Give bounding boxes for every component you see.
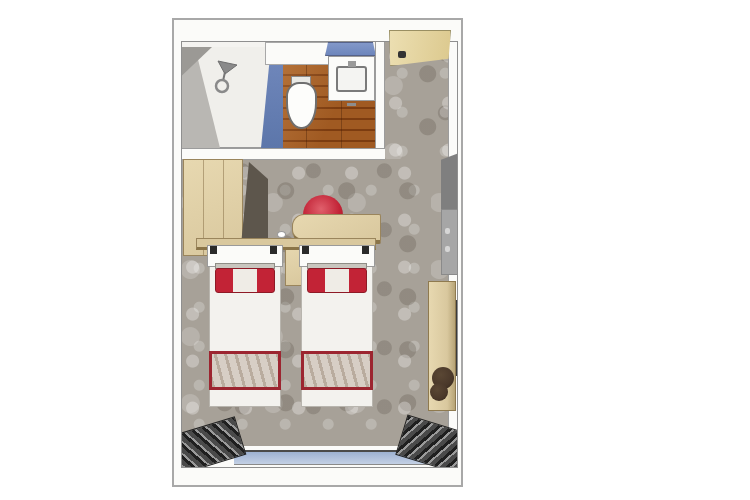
vanity-foot: [347, 103, 356, 106]
panel-knob-top: [445, 228, 450, 234]
door-handle: [398, 51, 406, 58]
cabin-interior: [181, 41, 458, 468]
headboard-clip: [270, 246, 277, 254]
sink-basin: [336, 66, 367, 92]
panel-knob-bottom: [445, 246, 450, 252]
cup: [277, 231, 286, 238]
bed-pillow: [215, 268, 275, 293]
bed-pillow: [307, 268, 367, 293]
headboard-clip: [362, 246, 369, 254]
bathroom-cabinet: [265, 42, 329, 65]
floor-plan-image: [0, 0, 750, 500]
stool-seat: [430, 383, 448, 401]
bed-runner: [209, 351, 281, 390]
wall-panel-dark: [441, 153, 458, 209]
twin-bed-left: [207, 245, 283, 407]
vanity-shelf: [325, 42, 376, 56]
wall-panel-light: [441, 209, 458, 275]
twin-bed-right: [299, 245, 375, 407]
faucet: [348, 61, 356, 67]
shower-head-icon: [210, 55, 244, 95]
headboard-clip: [210, 246, 217, 254]
bathroom-entry-wall: [375, 42, 385, 153]
bed-runner: [301, 351, 373, 390]
cabin-floor-plan: [172, 18, 463, 487]
headboard-clip: [302, 246, 309, 254]
